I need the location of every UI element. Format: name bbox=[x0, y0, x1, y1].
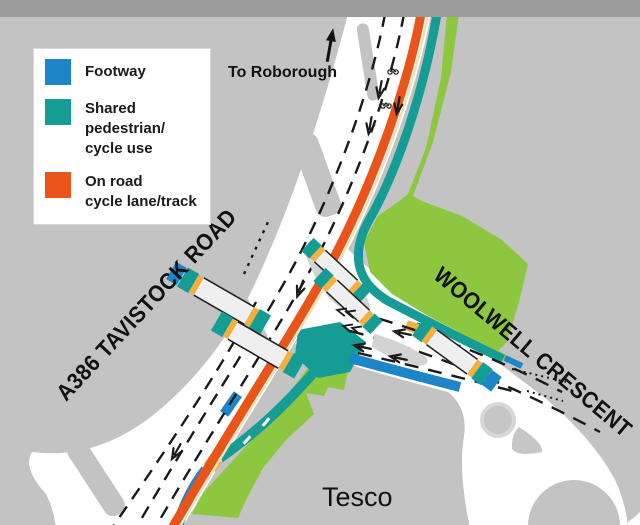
legend-label-line: cycle lane/track bbox=[85, 193, 197, 210]
legend-item-on-road: On road cycle lane/track bbox=[45, 172, 197, 212]
top-band bbox=[0, 0, 640, 17]
legend-label-line: On road bbox=[85, 173, 143, 190]
scheme-map: To Roborough A386 TAVISTOCK ROAD WOOLWEL… bbox=[0, 0, 640, 525]
legend-label: Shared pedestrian/ cycle use bbox=[85, 99, 197, 158]
legend-label-line: cycle use bbox=[85, 140, 153, 157]
direction-label: To Roborough bbox=[228, 64, 337, 81]
cycle-lane-swatch bbox=[45, 172, 71, 198]
legend: Footway Shared pedestrian/ cycle use On … bbox=[33, 48, 211, 225]
footway-swatch bbox=[45, 59, 71, 85]
store-label: Tesco bbox=[322, 482, 393, 512]
legend-item-footway: Footway bbox=[45, 59, 197, 85]
legend-label-line: Shared pedestrian/ bbox=[85, 100, 165, 137]
legend-label: On road cycle lane/track bbox=[85, 172, 197, 212]
corner-circle-island bbox=[482, 404, 514, 436]
legend-item-shared: Shared pedestrian/ cycle use bbox=[45, 99, 197, 158]
shared-use-swatch bbox=[45, 99, 71, 125]
legend-label: Footway bbox=[85, 62, 146, 82]
